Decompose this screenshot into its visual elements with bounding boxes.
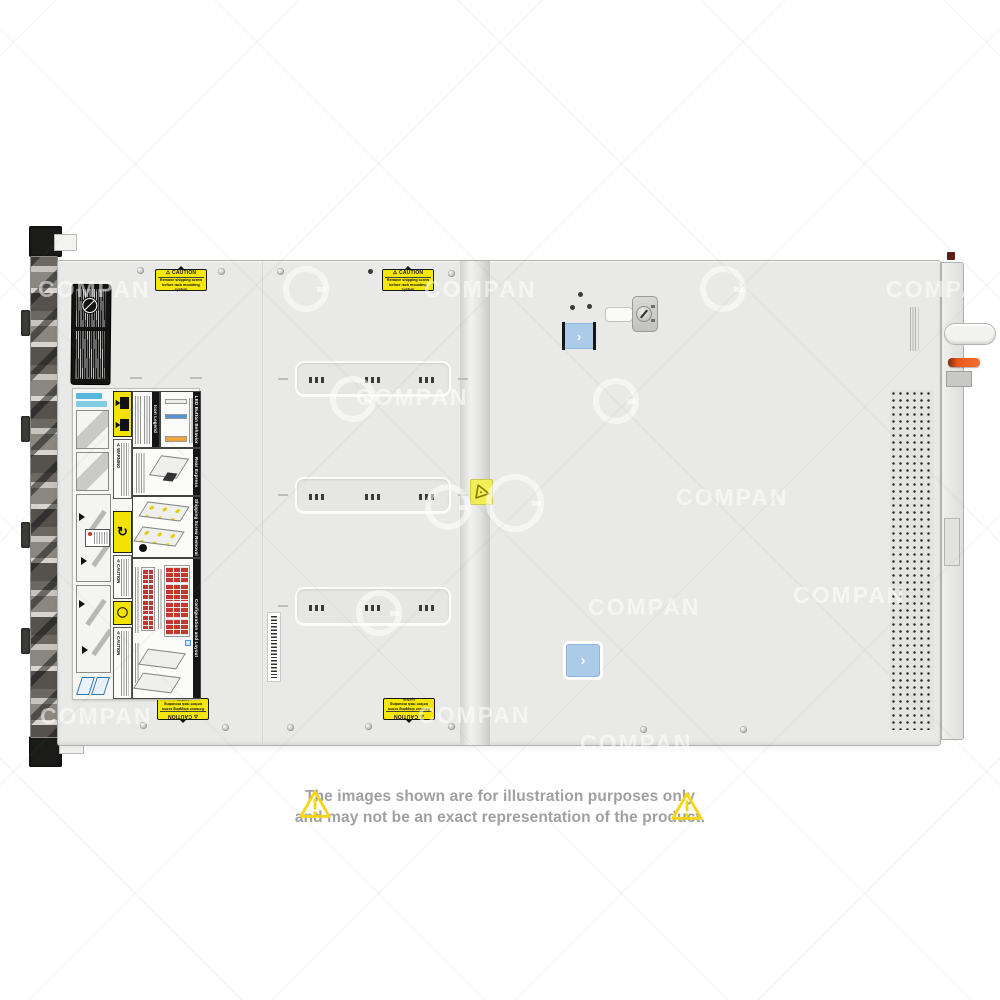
- fine-print: [135, 396, 142, 444]
- vent-dots: [419, 494, 436, 500]
- disclaimer-line2: and may not be an exact representation o…: [0, 807, 1000, 828]
- caution-sticker: ⚠ CAUTION Remove shipping screw before r…: [155, 269, 207, 291]
- caution-sticker: ⚠ CAUTION Remove shipping screw before r…: [157, 698, 209, 720]
- fine-print: [121, 631, 129, 696]
- caution-sticker: ⚠ CAUTION Remove shipping screw before r…: [383, 698, 435, 720]
- vent-dots: [419, 605, 436, 611]
- panel-mark: [458, 494, 468, 496]
- caution-line2: before rack mounting system: [158, 283, 204, 292]
- led-bar-blue: [165, 414, 187, 419]
- warning-triangle-icon: [670, 790, 704, 822]
- bezel-latch: [21, 628, 30, 654]
- vent-dots: [309, 494, 326, 500]
- screw: [448, 723, 455, 730]
- step-number: [139, 544, 147, 552]
- led-bar-off: [165, 399, 187, 404]
- vent-dots: [365, 377, 382, 383]
- latch-bracket: [593, 322, 596, 350]
- screw: [277, 268, 284, 275]
- section-title: LED Button Behavior: [193, 392, 200, 447]
- lock-icon: [651, 305, 655, 308]
- shipping-screw: [947, 252, 955, 260]
- embossed-slot: [295, 587, 451, 625]
- panel-mark: [130, 377, 142, 379]
- screw: [140, 722, 147, 729]
- caution-header: CAUTION: [172, 270, 196, 276]
- sticker-arrow: [404, 266, 412, 270]
- vent-dots: [419, 377, 436, 383]
- section-title: Rear Express Service Tag: [193, 449, 200, 495]
- regulatory-label: [71, 285, 110, 384]
- fine-print: [144, 396, 151, 444]
- panel-mark: [190, 377, 202, 379]
- led-behavior-section: LED Button Behavior: [160, 391, 201, 448]
- icon-legend-section: Icon Legend: [132, 391, 160, 448]
- disclaimer-line1: The images shown are for illustration pu…: [0, 786, 1000, 807]
- instruction-diagram: [76, 410, 109, 449]
- warning-square-sticker: [470, 479, 493, 505]
- caution-strip: ⚠ CAUTION: [113, 627, 132, 699]
- unlock-icon: [651, 319, 655, 322]
- led-bar-amber: [165, 436, 187, 442]
- panel-mark: [278, 494, 288, 496]
- caution-line1: Remove shipping screw: [386, 706, 432, 710]
- service-info-label: ⚠ WARNING ↻ ⚠ CAUTION ◯ ⚠ CAUTION Icon L…: [72, 388, 200, 700]
- label-blue-chip: [76, 393, 102, 399]
- section-title: Shipping Screw Removal: [193, 497, 200, 557]
- screw: [218, 268, 225, 275]
- caution-strip: ⚠ CAUTION: [113, 555, 132, 599]
- disclaimer: The images shown are for illustration pu…: [0, 786, 1000, 828]
- regulatory-mark-icon: [82, 298, 97, 313]
- vent-dots: [309, 605, 326, 611]
- section-title: Icon Legend: [152, 392, 159, 447]
- fine-print: [910, 307, 920, 351]
- pinch-hazard-pictogram: [113, 391, 132, 437]
- chassis-diagram: [138, 649, 186, 670]
- no-lift-pictogram: ◯: [113, 601, 132, 625]
- screw: [570, 305, 575, 310]
- chassis-diagram: [133, 673, 181, 694]
- drive-bay-grid-front: [141, 567, 155, 631]
- bezel-latch: [21, 416, 30, 442]
- fine-print: [121, 559, 129, 596]
- cover-release-latch[interactable]: ›: [566, 644, 600, 677]
- rail-diagram: [76, 494, 111, 582]
- warning-symbol: ⚠: [194, 713, 199, 719]
- rear-bracket: [946, 371, 972, 387]
- rail-diagram: [76, 585, 111, 673]
- screw: [368, 269, 373, 274]
- bezel-latch: [21, 310, 30, 336]
- bezel-latch: [21, 522, 30, 548]
- chevron-right-icon: ›: [577, 329, 581, 344]
- vent-dots: [365, 494, 382, 500]
- warning-strip: ⚠ WARNING: [113, 439, 132, 499]
- vent-dots: [309, 377, 326, 383]
- shipping-screw-section: Shipping Screw Removal: [132, 496, 201, 558]
- diagram-inset: [85, 529, 110, 547]
- screw: [448, 270, 455, 277]
- vent-grid: [890, 390, 934, 730]
- panel-mark: [278, 378, 288, 380]
- warning-triangle-icon: [474, 484, 491, 501]
- warning-symbol: ⚠: [420, 713, 425, 719]
- legend-cell: [185, 640, 191, 646]
- barcode-label: [267, 612, 281, 682]
- warning-triangle-icon: [298, 788, 332, 820]
- vent-dots: [365, 605, 382, 611]
- caution-line1: Remove shipping screw: [160, 706, 206, 710]
- cover-release-latch[interactable]: ›: [563, 323, 595, 349]
- label-blue-chip: [76, 401, 107, 407]
- fine-print: [121, 443, 129, 496]
- caution-header: CAUTION: [399, 270, 423, 276]
- fine-print: [76, 331, 106, 379]
- screw: [365, 723, 372, 730]
- embossed-slot: [295, 477, 451, 513]
- screw: [137, 267, 144, 274]
- section-title: Configuration and Layout: [193, 559, 200, 698]
- rotation-hazard-pictogram: ↻: [113, 511, 132, 553]
- fine-print: [135, 567, 140, 633]
- chevron-right-icon: ›: [581, 652, 586, 669]
- rear-tab: [944, 518, 960, 566]
- panel-mark: [458, 378, 468, 380]
- screw: [587, 304, 592, 309]
- fine-print: [158, 569, 162, 629]
- service-tag-section: Rear Express Service Tag: [132, 448, 201, 496]
- sticker-arrow: [179, 719, 187, 723]
- cover-seam: [262, 261, 264, 745]
- screw: [222, 724, 229, 731]
- drive-bay-grid-main: [164, 565, 190, 637]
- front-bezel: [30, 256, 58, 738]
- warning-symbol: ⚠: [393, 270, 398, 276]
- screw: [578, 292, 583, 297]
- sticker-arrow: [177, 266, 185, 270]
- server-top-view-photo: ⚠ CAUTION Remove shipping screw before r…: [28, 228, 968, 768]
- fine-print: [136, 453, 146, 493]
- panel-mark: [278, 605, 288, 607]
- screw: [740, 726, 747, 733]
- chassis-diagram: [138, 501, 189, 521]
- embossed-slot: [295, 361, 451, 396]
- caution-line2: before rack mounting system: [385, 283, 431, 292]
- cover-keylock[interactable]: [632, 296, 658, 332]
- warning-symbol: ⚠: [166, 270, 171, 276]
- latch-bracket: [562, 322, 565, 350]
- caution-line2: before rack mounting system: [386, 697, 432, 706]
- caution-sticker: ⚠ CAUTION Remove shipping screw before r…: [382, 269, 434, 291]
- rail-bracket-top: [54, 234, 77, 251]
- screw: [640, 726, 647, 733]
- release-lever-orange[interactable]: [948, 358, 980, 367]
- rear-handle[interactable]: [944, 323, 996, 345]
- slide-tab[interactable]: [605, 307, 633, 322]
- instruction-diagram: [76, 452, 109, 491]
- sticker-arrow: [405, 719, 413, 723]
- screw: [287, 724, 294, 731]
- configuration-section: Configuration and Layout: [132, 558, 201, 699]
